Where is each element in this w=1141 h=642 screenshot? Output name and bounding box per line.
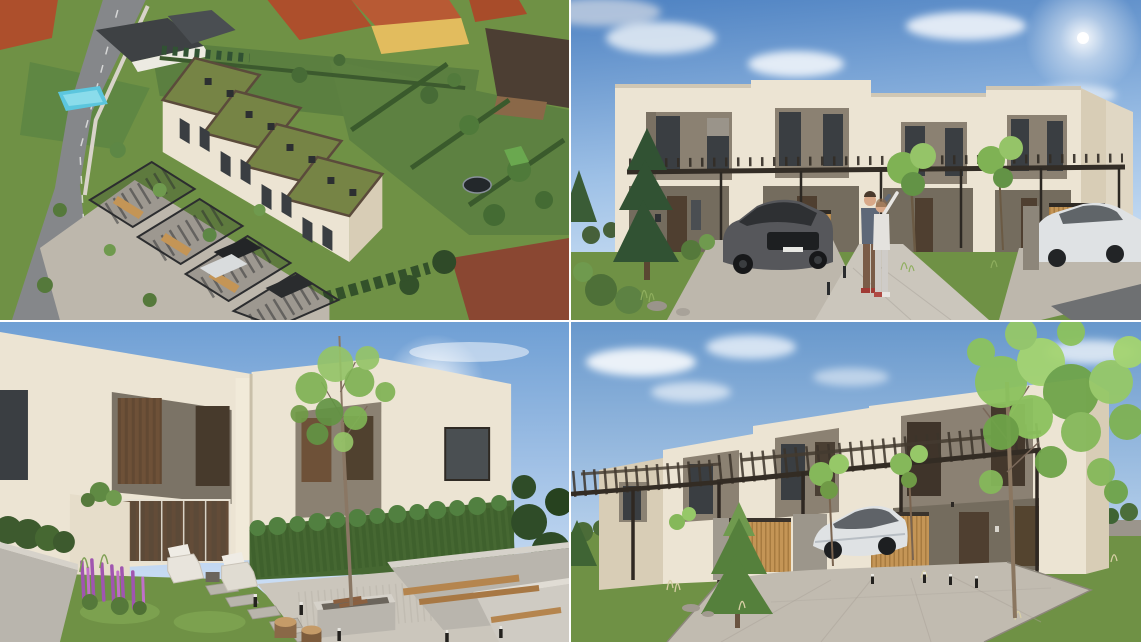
mailbox (655, 214, 661, 222)
street-scene (571, 0, 1141, 320)
aerial-scene (0, 0, 569, 320)
sun-core (1077, 32, 1089, 44)
right-window (445, 428, 489, 480)
panel-garden-view (0, 322, 569, 642)
entry-door (959, 512, 989, 570)
panel-street-elevation (571, 0, 1141, 320)
panel-driveway-view (571, 322, 1141, 642)
trampoline (463, 177, 491, 193)
rock (647, 301, 667, 311)
entry-pier (1023, 206, 1039, 270)
house-number (995, 526, 999, 532)
rock (682, 604, 700, 612)
garden-scene (0, 322, 569, 642)
driveway-scene (571, 322, 1141, 642)
side-table (206, 572, 220, 582)
panel-aerial-view (0, 0, 569, 320)
license-plate (783, 247, 803, 252)
unit-far (599, 458, 663, 590)
bollard-light (843, 266, 846, 278)
wall-lamp (951, 502, 954, 507)
render-collage (0, 0, 1141, 642)
